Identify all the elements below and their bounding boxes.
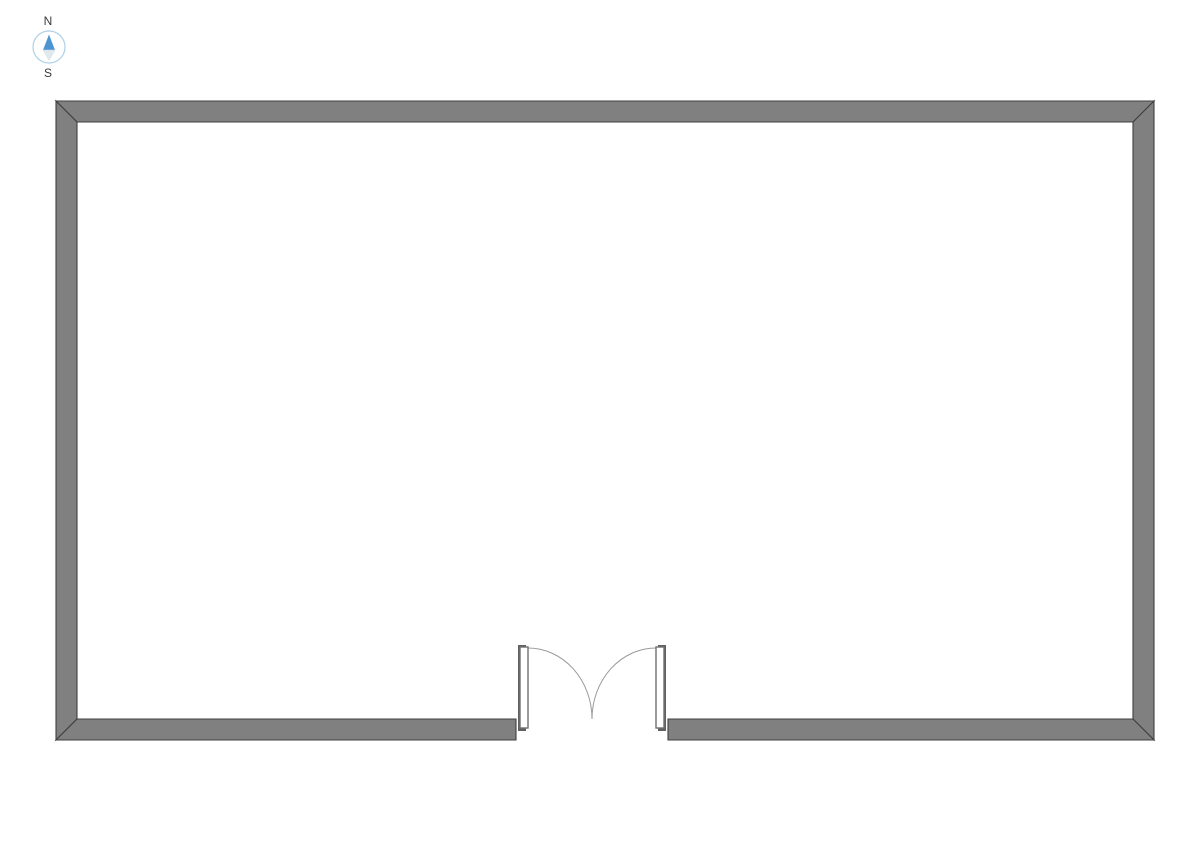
double-door[interactable] xyxy=(518,645,666,731)
compass-north-label: N xyxy=(44,14,53,28)
compass-south-label: S xyxy=(44,66,52,80)
wall-right[interactable] xyxy=(1133,101,1154,740)
door-swing-arc-right xyxy=(592,648,656,719)
floor-plan-canvas[interactable]: N S xyxy=(0,0,1191,842)
compass-icon: N S xyxy=(33,14,65,80)
floor-plan-drawing: N S xyxy=(0,0,1191,842)
wall-left[interactable] xyxy=(56,101,77,740)
door-leaf-left[interactable] xyxy=(520,647,528,728)
wall-bottom-right[interactable] xyxy=(668,719,1154,740)
door-leaf-right[interactable] xyxy=(656,647,664,728)
wall-top[interactable] xyxy=(56,101,1154,122)
wall-bottom-left[interactable] xyxy=(56,719,516,740)
room-walls[interactable] xyxy=(56,101,1154,740)
door-swing-arc-left xyxy=(528,648,592,719)
